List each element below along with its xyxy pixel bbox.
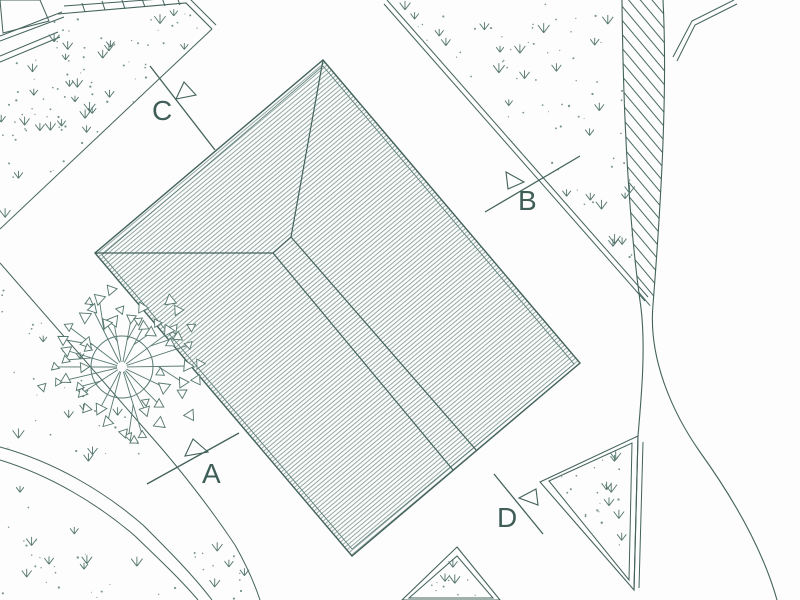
section-marker-label-c: C xyxy=(152,95,172,126)
grass-dot xyxy=(532,27,534,29)
grass-dot xyxy=(46,116,47,117)
grass-dot xyxy=(551,162,553,164)
grass-dot xyxy=(426,40,427,41)
grass-dot xyxy=(174,587,176,589)
grass-dot xyxy=(177,22,179,24)
grass-dot xyxy=(239,579,241,581)
grass-dot xyxy=(124,416,126,418)
grass-dot xyxy=(8,162,10,164)
grass-dot xyxy=(64,387,65,388)
grass-dot xyxy=(555,127,557,129)
grass-dot xyxy=(81,142,83,144)
site-plan-sheet: C B A D xyxy=(0,0,800,600)
grass-dot xyxy=(34,114,35,115)
grass-dot xyxy=(584,203,586,205)
grass-dot xyxy=(7,447,8,448)
grass-dot xyxy=(8,104,10,106)
grass-dot xyxy=(35,60,36,61)
grass-dot xyxy=(516,78,518,80)
grass-dot xyxy=(621,90,623,92)
grass-dot xyxy=(23,540,25,542)
grass-dot xyxy=(94,410,96,412)
grass-dot xyxy=(575,18,576,19)
grass-dot xyxy=(62,29,64,31)
grass-dot xyxy=(66,74,68,76)
grass-dot xyxy=(43,98,45,100)
grass-dot xyxy=(623,162,625,164)
grass-dot xyxy=(189,14,191,16)
grass-dot xyxy=(501,36,502,37)
grass-dot xyxy=(113,43,115,45)
grass-dot xyxy=(85,554,86,555)
grass-dot xyxy=(60,123,62,125)
grass-dot xyxy=(14,121,16,123)
grass-dot xyxy=(145,76,147,78)
grass-dot xyxy=(35,540,36,541)
grass-dot xyxy=(16,62,18,64)
grass-dot xyxy=(132,101,133,102)
grass-dot xyxy=(39,557,40,558)
grass-dot xyxy=(64,96,66,98)
grass-dot xyxy=(568,105,570,107)
grass-dot xyxy=(138,453,140,455)
grass-dot xyxy=(614,459,615,460)
grass-dot xyxy=(2,289,4,291)
grass-dot xyxy=(443,586,445,588)
grass-dot xyxy=(59,126,61,128)
grass-dot xyxy=(436,582,437,583)
grass-dot xyxy=(592,201,594,203)
grass-dot xyxy=(547,52,548,53)
grass-dot xyxy=(508,116,509,117)
grass-dot xyxy=(576,80,577,81)
grass-dot xyxy=(25,130,27,132)
grass-dot xyxy=(542,104,544,106)
grass-dot xyxy=(535,79,537,81)
grass-dot xyxy=(55,572,57,574)
grass-dot xyxy=(34,79,35,80)
grass-dot xyxy=(594,467,595,468)
grass-dot xyxy=(597,492,599,494)
grass-dot xyxy=(600,42,601,43)
grass-dot xyxy=(522,112,524,114)
grass-dot xyxy=(81,380,83,382)
grass-dot xyxy=(422,40,424,42)
grass-dot xyxy=(584,118,585,119)
grass-dot xyxy=(68,60,70,62)
grass-dot xyxy=(32,324,34,326)
grass-dot xyxy=(628,256,630,258)
grass-dot xyxy=(77,556,79,558)
grass-dot xyxy=(194,552,196,554)
grass-dot xyxy=(28,507,30,509)
grass-dot xyxy=(611,166,613,168)
grass-dot xyxy=(158,30,159,31)
grass-dot xyxy=(33,378,35,380)
grass-dot xyxy=(8,527,10,529)
grass-dot xyxy=(533,43,535,45)
grass-dot xyxy=(75,450,77,452)
grass-dot xyxy=(522,154,523,155)
grass-dot xyxy=(144,67,146,69)
grass-dot xyxy=(503,60,505,62)
grass-dot xyxy=(431,584,433,586)
grass-dot xyxy=(240,590,242,592)
grass-dot xyxy=(64,125,66,127)
grass-dot xyxy=(618,468,620,470)
grass-dot xyxy=(599,503,600,504)
grass-dot xyxy=(31,328,33,330)
grass-dot xyxy=(578,116,580,118)
grass-dot xyxy=(58,586,60,588)
grass-dot xyxy=(560,125,562,127)
grass-dot xyxy=(624,103,625,104)
grass-dot xyxy=(80,72,81,73)
grass-dot xyxy=(456,56,457,57)
grass-dot xyxy=(171,25,173,27)
grass-dot xyxy=(83,56,85,58)
grass-dot xyxy=(202,553,203,554)
grass-dot xyxy=(548,111,549,112)
grass-dot xyxy=(54,21,56,23)
grass-dot xyxy=(14,372,15,373)
grass-dot xyxy=(68,30,69,31)
grass-dot xyxy=(239,573,240,574)
grass-dot xyxy=(49,108,51,110)
grass-dot xyxy=(459,52,461,54)
grass-dot xyxy=(572,57,574,59)
grass-dot xyxy=(617,498,619,500)
grass-dot xyxy=(99,425,100,426)
grass-dot xyxy=(631,254,633,256)
grass-dot xyxy=(192,46,194,48)
grass-dot xyxy=(555,19,557,21)
site-plan-canvas: C B A D xyxy=(0,0,800,600)
grass-dot xyxy=(53,170,54,171)
grass-dot xyxy=(15,99,17,101)
grass-dot xyxy=(63,160,65,162)
grass-dot xyxy=(97,131,99,133)
grass-dot xyxy=(163,42,165,44)
grass-dot xyxy=(131,40,132,41)
grass-dot xyxy=(21,114,23,116)
grass-dot xyxy=(602,460,603,461)
grass-dot xyxy=(84,47,86,49)
grass-dot xyxy=(158,594,159,595)
grass-dot xyxy=(50,171,52,173)
grass-dot xyxy=(601,522,603,524)
grass-dot xyxy=(619,544,620,545)
section-marker-label-d: D xyxy=(497,502,517,533)
grass-dot xyxy=(475,595,476,596)
section-marker-label-b: B xyxy=(518,185,537,216)
grass-dot xyxy=(105,453,106,454)
grass-dot xyxy=(442,15,444,17)
grass-dot xyxy=(467,579,468,580)
grass-dot xyxy=(31,554,32,555)
grass-dot xyxy=(83,69,85,71)
grass-dot xyxy=(147,44,149,46)
grass-dot xyxy=(490,27,492,29)
grass-dot xyxy=(123,64,125,66)
grass-dot xyxy=(77,18,79,20)
grass-dot xyxy=(570,31,572,33)
grass-dot xyxy=(57,41,58,42)
grass-dot xyxy=(57,116,59,118)
grass-dot xyxy=(628,179,630,181)
grass-dot xyxy=(2,134,4,136)
grass-dot xyxy=(474,28,476,30)
grass-dot xyxy=(506,67,508,69)
grass-dot xyxy=(54,566,55,567)
grass-dot xyxy=(15,139,17,141)
grass-dot xyxy=(24,128,26,130)
grass-dot xyxy=(1,294,3,296)
grass-dot xyxy=(17,91,19,93)
grass-dot xyxy=(196,27,197,28)
grass-dot xyxy=(12,176,14,178)
grass-dot xyxy=(101,591,103,593)
grass-dot xyxy=(52,87,54,89)
grass-dot xyxy=(36,395,37,396)
grass-dot xyxy=(12,135,14,137)
grass-dot xyxy=(528,42,529,43)
grass-dot xyxy=(184,13,185,14)
grass-dot xyxy=(91,82,93,84)
grass-dot xyxy=(422,24,424,26)
grass-dot xyxy=(502,61,503,62)
grass-dot xyxy=(195,556,196,557)
grass-dot xyxy=(594,15,596,17)
grass-dot xyxy=(566,492,568,494)
grass-dot xyxy=(100,37,102,39)
grass-dot xyxy=(613,158,615,160)
grass-dot xyxy=(135,78,136,79)
grass-dot xyxy=(25,545,27,547)
grass-dot xyxy=(145,64,147,66)
grass-dot xyxy=(561,476,562,477)
grass-dot xyxy=(418,26,419,27)
grass-dot xyxy=(56,47,57,48)
grass-dot xyxy=(448,580,450,582)
grass-dot xyxy=(91,93,93,95)
grass-dot xyxy=(510,49,511,50)
grass-dot xyxy=(576,475,578,477)
grass-dot xyxy=(561,104,563,106)
grass-dot xyxy=(596,81,598,83)
grass-dot xyxy=(435,590,436,591)
grass-dot xyxy=(91,592,92,593)
grass-dot xyxy=(57,88,59,90)
grass-dot xyxy=(233,555,235,557)
grass-dot xyxy=(470,76,472,78)
grass-dot xyxy=(598,511,599,512)
grass-dot xyxy=(591,93,593,95)
grass-dot xyxy=(620,133,622,135)
grass-dot xyxy=(61,129,63,131)
grass-dot xyxy=(585,514,587,516)
grass-dot xyxy=(50,434,52,436)
grass-dot xyxy=(233,597,235,599)
grass-dot xyxy=(106,101,108,103)
grass-dot xyxy=(96,597,97,598)
grass-dot xyxy=(532,24,534,26)
grass-dot xyxy=(35,420,36,421)
grass-dot xyxy=(41,323,42,324)
grass-dot xyxy=(128,61,129,62)
grass-dot xyxy=(203,569,205,571)
grass-dot xyxy=(40,567,41,568)
grass-dot xyxy=(34,565,36,567)
grass-dot xyxy=(150,19,152,21)
grass-dot xyxy=(631,235,632,236)
grass-dot xyxy=(570,488,572,490)
grass-dot xyxy=(621,99,623,101)
grass-dot xyxy=(89,85,91,87)
grass-dot xyxy=(545,4,547,6)
grass-dot xyxy=(596,509,598,511)
grass-dot xyxy=(2,592,4,594)
grass-dot xyxy=(109,584,110,585)
grass-dot xyxy=(31,108,33,110)
section-marker-label-a: A xyxy=(202,458,221,489)
grass-dot xyxy=(137,42,139,44)
grass-dot xyxy=(559,50,560,51)
grass-dot xyxy=(29,333,30,334)
grass-dot xyxy=(577,189,578,190)
grass-dot xyxy=(46,582,47,583)
grass-dot xyxy=(457,594,459,596)
grass-dot xyxy=(212,565,214,567)
grass-dot xyxy=(114,426,116,428)
grass-dot xyxy=(1,311,3,313)
